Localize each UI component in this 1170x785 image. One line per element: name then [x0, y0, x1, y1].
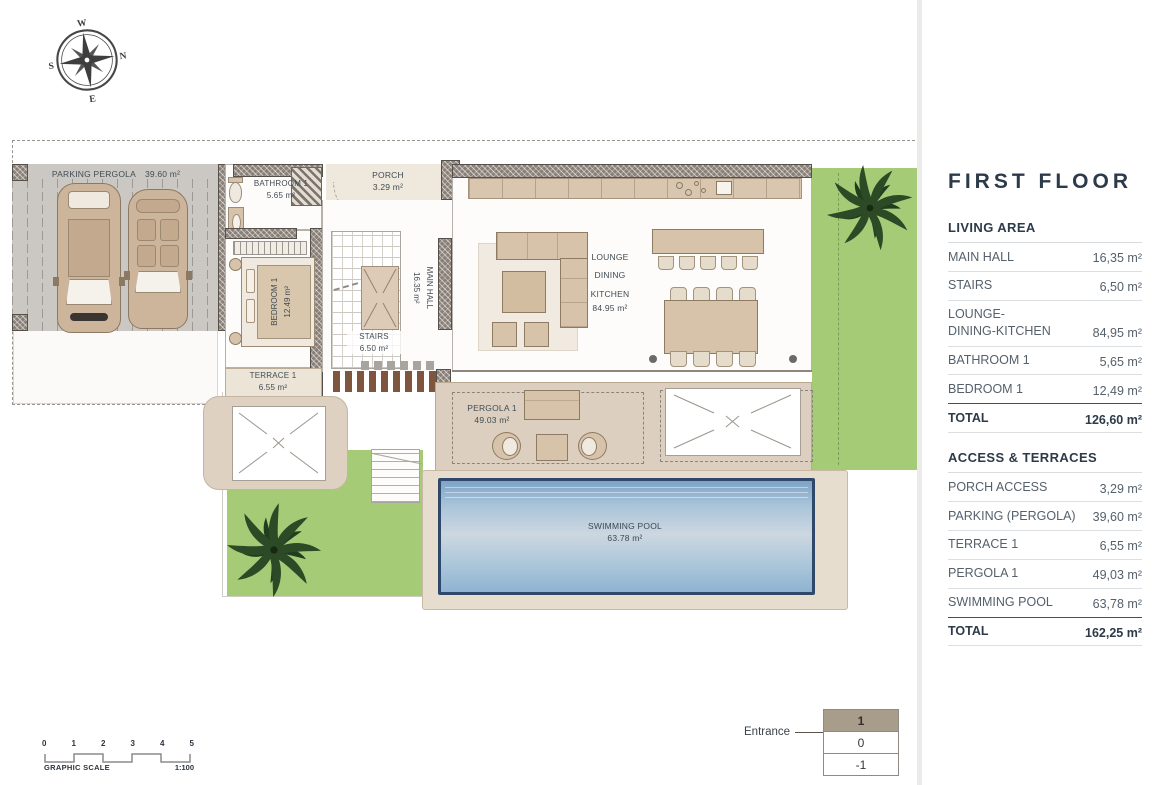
- skylight-x-marks: [666, 389, 799, 454]
- hob-burner-icon: [694, 181, 699, 186]
- row-value: 6,55 m²: [1100, 539, 1142, 553]
- access-total-row: TOTAL 162,25 m²: [948, 617, 1142, 647]
- parking-label: PARKING PERGOLA 39.60 m²: [22, 168, 210, 180]
- wall-segment: [12, 164, 28, 181]
- stairs-label: STAIRS 6.50 m²: [347, 331, 401, 354]
- plot-boundary-top: [12, 140, 920, 141]
- table-row: PERGOLA 1 49,03 m²: [948, 560, 1142, 589]
- car-grille: [70, 313, 108, 321]
- bathroom-label: BATHROOM 1 5.65 m²: [248, 178, 314, 201]
- skylight-panel: [232, 406, 326, 481]
- outdoor-sofa-icon: [524, 390, 580, 420]
- compass-e-label: E: [89, 93, 97, 105]
- bedroom-label-rotated: BEDROOM 1 12.49 m²: [269, 278, 295, 326]
- main-hall-area: 16.35 m²: [409, 272, 422, 304]
- deck-step-strip: [361, 361, 439, 370]
- main-hall-label-rotated: MAIN HALL 16.35 m²: [409, 267, 435, 309]
- wall-segment: [12, 314, 28, 331]
- car-seat: [160, 219, 179, 241]
- table-row: BATHROOM 1 5,65 m²: [948, 347, 1142, 376]
- scale-tick: 5: [190, 739, 194, 748]
- table-row: TERRACE 1 6,55 m²: [948, 531, 1142, 560]
- car-seat: [137, 219, 156, 241]
- ottoman-icon: [492, 322, 517, 347]
- chair-cushion: [581, 437, 597, 456]
- scale-tick: 4: [160, 739, 164, 748]
- table-row: SWIMMING POOL 63,78 m²: [948, 589, 1142, 617]
- scale-ticks: 0 1 2 3 4 5: [42, 739, 194, 748]
- wall-line: [452, 370, 812, 372]
- lounge-line-3: KITCHEN: [580, 288, 640, 300]
- lounge-line-1: LOUNGE: [580, 251, 640, 263]
- total-label: TOTAL: [948, 410, 989, 427]
- floor-option-minus1[interactable]: -1: [823, 754, 899, 776]
- void-x-marks: [362, 267, 398, 329]
- toilet-icon: [229, 182, 242, 203]
- car-windshield: [66, 279, 112, 305]
- bar-stool-icon: [700, 256, 716, 270]
- sofa-icon: [496, 232, 588, 260]
- car-mirror: [53, 277, 59, 286]
- hob-burner-icon: [676, 182, 683, 189]
- row-label: PARKING (PERGOLA): [948, 508, 1076, 525]
- bathroom-area: 5.65 m²: [248, 190, 314, 202]
- table-row: BEDROOM 1 12,49 m²: [948, 375, 1142, 403]
- hob-burner-icon: [701, 188, 706, 193]
- panel-divider: [917, 0, 922, 785]
- bar-stool-icon: [679, 256, 695, 270]
- wardrobe-icon: [233, 241, 307, 255]
- wood-deck: [333, 371, 436, 392]
- pool-name: SWIMMING POOL: [540, 520, 710, 532]
- car-windshield: [135, 271, 181, 293]
- row-label: MAIN HALL: [948, 249, 1014, 266]
- scale-tick: 1: [72, 739, 76, 748]
- row-value: 84,95 m²: [1093, 326, 1142, 340]
- pool-steps-texture: [445, 484, 808, 498]
- total-value: 126,60 m²: [1085, 413, 1142, 427]
- outdoor-chair-icon: [492, 432, 521, 460]
- floor-option-1[interactable]: 1: [823, 710, 899, 732]
- pergola-name: PERGOLA 1: [460, 402, 524, 414]
- car-seat: [160, 245, 179, 267]
- skylight-x-marks: [233, 407, 324, 479]
- nightstand-icon: [229, 258, 242, 271]
- dining-chair-icon: [693, 351, 710, 367]
- compass-w-label: W: [76, 17, 87, 29]
- pergola-area-value: 49.03 m²: [460, 414, 524, 426]
- floor-dot: [789, 355, 797, 363]
- scale-bar: [44, 750, 194, 764]
- bar-stool-icon: [721, 256, 737, 270]
- outdoor-chair-icon: [578, 432, 607, 460]
- floor-dot: [649, 355, 657, 363]
- hob-burner-icon: [685, 189, 692, 196]
- exterior-stairs: [371, 449, 420, 503]
- chair-cushion: [502, 437, 518, 456]
- terrace-area-value: 6.55 m²: [238, 382, 308, 394]
- ottoman-icon: [524, 322, 549, 347]
- lounge-area: 84.95 m²: [580, 302, 640, 314]
- row-value: 12,49 m²: [1093, 384, 1142, 398]
- table-row: STAIRS 6,50 m²: [948, 272, 1142, 301]
- row-label: LOUNGE- DINING-KITCHEN: [948, 306, 1051, 340]
- stair-diagonal: [370, 453, 421, 465]
- area-summary-panel: FIRST FLOOR LIVING AREA MAIN HALL 16,35 …: [948, 170, 1142, 646]
- palm-tree-icon: [822, 160, 918, 256]
- kitchen-counter: [468, 178, 802, 199]
- driveway-area: [13, 331, 218, 404]
- car-rear-window: [68, 191, 110, 209]
- row-label: TERRACE 1: [948, 536, 1018, 553]
- total-label: TOTAL: [948, 623, 989, 640]
- row-value: 63,78 m²: [1093, 597, 1142, 611]
- kitchen-island-icon: [652, 229, 764, 254]
- floor-option-0[interactable]: 0: [823, 732, 899, 754]
- page-title: FIRST FLOOR: [948, 170, 1142, 194]
- compass-n-label: N: [119, 50, 127, 62]
- terrace-label: TERRACE 1 6.55 m²: [238, 370, 308, 393]
- dining-table-icon: [664, 300, 758, 354]
- row-value: 49,03 m²: [1093, 568, 1142, 582]
- lounge-label: LOUNGE DINING KITCHEN 84.95 m²: [580, 251, 640, 314]
- stairs-area: 6.50 m²: [347, 343, 401, 355]
- total-value: 162,25 m²: [1085, 626, 1142, 640]
- access-terraces-header: ACCESS & TERRACES: [948, 450, 1142, 473]
- car-convertible-icon: [128, 189, 188, 329]
- pool-area-value: 63.78 m²: [540, 532, 710, 544]
- scale-tick: 3: [131, 739, 135, 748]
- living-total-row: TOTAL 126,60 m²: [948, 403, 1142, 433]
- row-value: 16,35 m²: [1093, 251, 1142, 265]
- wall-segment: [452, 164, 812, 178]
- bar-stool-icon: [658, 256, 674, 270]
- car-roof: [68, 219, 110, 277]
- porch-name: PORCH: [355, 169, 421, 181]
- scale-tick: 0: [42, 739, 46, 748]
- floor-selector: 1 0 -1: [823, 709, 899, 776]
- bedroom-label: BEDROOM 1 12.49 m²: [252, 272, 312, 332]
- living-area-header: LIVING AREA: [948, 220, 1142, 243]
- table-row: MAIN HALL 16,35 m²: [948, 243, 1142, 272]
- outdoor-table-icon: [536, 434, 568, 461]
- bedroom-name: BEDROOM 1: [269, 278, 282, 326]
- parking-area: 39.60 m²: [145, 168, 180, 180]
- main-hall-label: MAIN HALL 16.35 m²: [400, 252, 444, 324]
- car-sedan-icon: [57, 183, 121, 333]
- pool-label: SWIMMING POOL 63.78 m²: [540, 520, 710, 545]
- bathroom-name: BATHROOM 1: [248, 178, 314, 190]
- bar-stool-icon: [742, 256, 758, 270]
- stair-void: [361, 266, 399, 330]
- row-label: PERGOLA 1: [948, 565, 1018, 582]
- row-label: SWIMMING POOL: [948, 594, 1053, 611]
- stairs-name: STAIRS: [347, 331, 401, 343]
- wall-segment: [225, 228, 297, 239]
- skylight-panel: [665, 388, 801, 456]
- entrance-pointer-line: [795, 732, 823, 733]
- bedroom-area: 12.49 m²: [282, 286, 295, 318]
- plot-boundary-bottom-left: [12, 404, 230, 405]
- row-label: PORCH ACCESS: [948, 479, 1047, 496]
- lounge-line-2: DINING: [580, 269, 640, 281]
- dining-chair-icon: [739, 351, 756, 367]
- compass-s-label: S: [48, 61, 55, 73]
- row-value: 3,29 m²: [1100, 482, 1142, 496]
- main-hall-name: MAIN HALL: [422, 267, 435, 309]
- nightstand-icon: [229, 332, 242, 345]
- row-value: 39,60 m²: [1093, 510, 1142, 524]
- pergola-label: PERGOLA 1 49.03 m²: [460, 402, 524, 427]
- parking-name: PARKING PERGOLA: [52, 168, 136, 180]
- car-seat: [137, 245, 156, 267]
- table-row: LOUNGE- DINING-KITCHEN 84,95 m²: [948, 301, 1142, 347]
- row-label: STAIRS: [948, 277, 992, 294]
- coffee-table-icon: [502, 271, 546, 313]
- car-mirror: [124, 271, 130, 280]
- scale-ratio: 1:100: [170, 763, 194, 772]
- row-value: 6,50 m²: [1100, 280, 1142, 294]
- dining-chair-icon: [670, 351, 687, 367]
- dining-chair-icon: [716, 351, 733, 367]
- scale-label: GRAPHIC SCALE: [44, 763, 110, 772]
- car-trunk: [136, 199, 180, 213]
- table-row: PARKING (PERGOLA) 39,60 m²: [948, 502, 1142, 531]
- row-label: BATHROOM 1: [948, 352, 1030, 369]
- floor-plan-page: W N E S PARKING PERGOLA 39.60 m²: [0, 0, 1170, 785]
- compass-rose: W N E S: [38, 8, 136, 111]
- scale-tick: 2: [101, 739, 105, 748]
- car-mirror: [186, 271, 192, 280]
- row-value: 5,65 m²: [1100, 355, 1142, 369]
- table-row: PORCH ACCESS 3,29 m²: [948, 473, 1142, 502]
- terrace-name: TERRACE 1: [238, 370, 308, 382]
- kitchen-sink-icon: [716, 181, 732, 195]
- entrance-label: Entrance: [744, 726, 790, 738]
- row-label: BEDROOM 1: [948, 381, 1023, 398]
